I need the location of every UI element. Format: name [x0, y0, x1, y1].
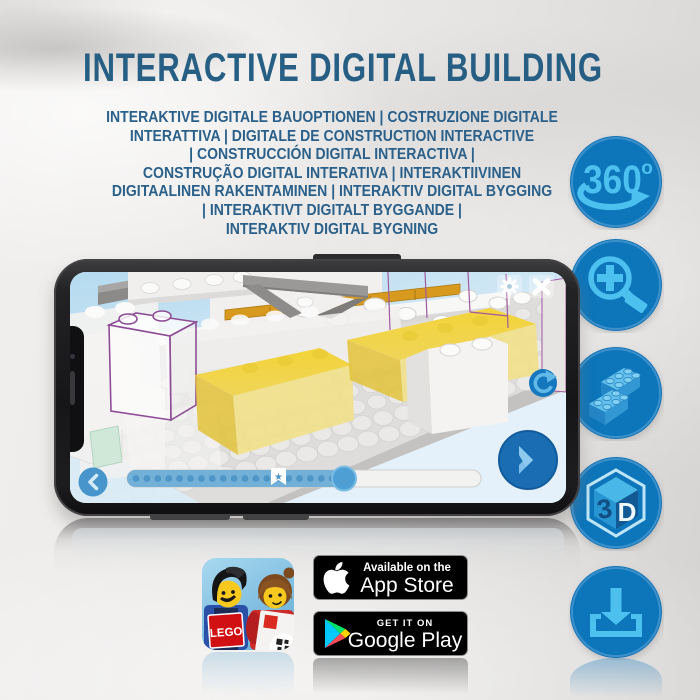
- svg-text:App Store: App Store: [360, 574, 453, 597]
- svg-text:GET IT ON: GET IT ON: [377, 618, 434, 629]
- svg-text:★: ★: [274, 472, 283, 483]
- svg-text:LEGO: LEGO: [210, 626, 243, 640]
- svg-text:D: D: [618, 497, 637, 527]
- svg-text:o: o: [641, 158, 653, 179]
- svg-text:Available on the: Available on the: [363, 562, 451, 574]
- svg-text:Google Play: Google Play: [348, 629, 463, 652]
